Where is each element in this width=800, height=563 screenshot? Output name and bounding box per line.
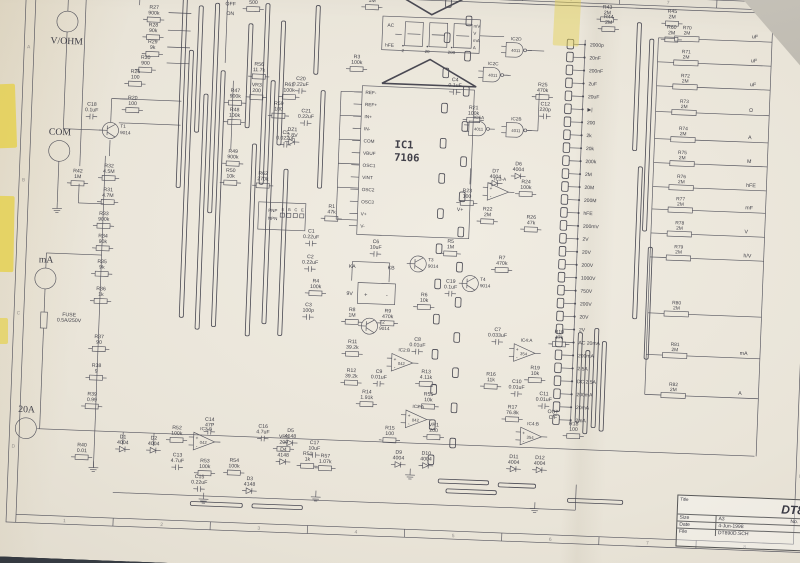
- svg-text:-: -: [490, 195, 492, 200]
- component-label: R141.91k: [356, 389, 378, 407]
- title-block-file-label: File: [677, 529, 716, 536]
- svg-text:2M: 2M: [605, 20, 612, 26]
- svg-text:354: 354: [527, 435, 535, 440]
- component-label: C20.22uF: [302, 254, 319, 272]
- svg-text:2V: 2V: [579, 327, 586, 333]
- svg-text:IC2C: IC2C: [488, 61, 500, 66]
- battery-9v: +-9V: [346, 282, 395, 305]
- component-label: R25470k: [532, 82, 554, 100]
- component-label: D114004: [506, 454, 521, 472]
- component-label: R147k: [321, 203, 343, 221]
- svg-text:C: C: [294, 207, 297, 212]
- svg-text:+: +: [364, 292, 368, 298]
- photo-background: 1122334455667788AABBCCDD2000p20nF200nF2u…: [0, 0, 800, 563]
- svg-text:2M: 2M: [676, 225, 683, 231]
- svg-text:+: +: [522, 432, 525, 437]
- svg-text:20V: 20V: [582, 250, 592, 256]
- component-label: C610uF: [369, 239, 381, 257]
- component-label: R1139.2k: [341, 339, 363, 357]
- fuse: [40, 312, 47, 328]
- svg-text:200nF: 200nF: [589, 68, 603, 74]
- svg-text:100k: 100k: [468, 111, 480, 117]
- component-label: C110.01uF: [535, 391, 552, 409]
- component-label: R15100: [379, 425, 401, 443]
- sheet-border: 1122334455667788AABBCCDD: [6, 0, 800, 553]
- svg-text:IN+: IN+: [364, 114, 372, 119]
- svg-text:uF: uF: [751, 58, 757, 64]
- svg-text:20k: 20k: [586, 146, 595, 152]
- component-label: C12220p: [539, 101, 551, 119]
- svg-text:100k: 100k: [520, 185, 532, 191]
- component-label: C1447P: [204, 417, 216, 435]
- svg-text:100: 100: [131, 74, 140, 80]
- svg-text:900k: 900k: [148, 10, 160, 16]
- component-label: R1239.2k: [340, 368, 362, 386]
- svg-text:6: 6: [549, 537, 552, 543]
- svg-text:100: 100: [569, 427, 578, 433]
- svg-text:IC2D: IC2D: [511, 36, 523, 41]
- svg-text:2M: 2M: [681, 104, 688, 110]
- svg-text:+: +: [393, 358, 396, 363]
- svg-text:R71: R71: [682, 49, 691, 55]
- svg-text:4004: 4004: [534, 461, 546, 467]
- svg-text:0.01uF: 0.01uF: [409, 342, 425, 349]
- svg-text:2.5A: 2.5A: [577, 366, 588, 372]
- component-label: R361k: [90, 286, 112, 304]
- svg-text:042: 042: [398, 361, 406, 366]
- title-block: Title DT890D Size A3 No. Date 4-Jun-1998…: [675, 495, 800, 553]
- svg-text:4004: 4004: [508, 460, 520, 466]
- svg-text:mA: mA: [39, 254, 54, 265]
- svg-text:200mA: 200mA: [578, 353, 595, 360]
- component-label: VR3200: [246, 82, 268, 100]
- svg-text:T1: T1: [120, 124, 126, 129]
- svg-text:9014: 9014: [480, 283, 491, 288]
- svg-text:7: 7: [667, 0, 670, 6]
- svg-text:M: M: [747, 159, 752, 165]
- svg-text:+: +: [489, 187, 492, 192]
- svg-text:39.2k: 39.2k: [346, 345, 359, 351]
- svg-text:2M: 2M: [679, 155, 686, 161]
- component-label: R27900k: [143, 4, 165, 22]
- component-label: R48100k: [224, 107, 246, 125]
- svg-text:+: +: [408, 414, 411, 419]
- component-label: R222M: [477, 206, 499, 224]
- svg-text:10k: 10k: [531, 371, 540, 377]
- svg-text:100: 100: [463, 194, 472, 200]
- svg-text:IN-: IN-: [364, 126, 371, 131]
- component-label: KA: [349, 264, 357, 270]
- svg-text:200: 200: [429, 428, 438, 434]
- svg-text:VBUF: VBUF: [363, 151, 376, 156]
- svg-text:REF+: REF+: [365, 102, 378, 107]
- component-label: R511k: [297, 451, 319, 469]
- component-label: D44148: [276, 447, 291, 465]
- component-label: C180.1uF: [85, 102, 99, 120]
- svg-text:0.22uF: 0.22uF: [303, 234, 319, 241]
- svg-text:2M: 2M: [671, 347, 678, 353]
- svg-text:-: -: [394, 366, 396, 371]
- svg-text:470k: 470k: [382, 314, 394, 320]
- svg-text:0.1uF: 0.1uF: [85, 107, 98, 113]
- svg-text:2M: 2M: [677, 202, 684, 208]
- svg-text:39.2k: 39.2k: [345, 373, 358, 379]
- svg-text:A: A: [738, 391, 742, 397]
- svg-text:4011: 4011: [488, 73, 498, 78]
- component-label: FUSE0.5A/250V: [57, 312, 82, 324]
- component-label: R81M: [341, 307, 363, 325]
- svg-text:1k: 1k: [305, 457, 311, 463]
- svg-text:2M: 2M: [680, 131, 687, 137]
- svg-text:COM: COM: [363, 138, 374, 143]
- svg-text:V-: V-: [360, 224, 365, 229]
- svg-text:4011: 4011: [474, 126, 484, 131]
- component-label: D34148: [242, 476, 257, 494]
- svg-text:2M: 2M: [673, 305, 680, 311]
- terminal-20a: 20A: [15, 404, 37, 439]
- svg-text:IC4:B: IC4:B: [527, 421, 539, 426]
- component-label: C200.22uF: [292, 76, 309, 94]
- component-label: R389: [85, 363, 107, 381]
- svg-text:R75: R75: [678, 150, 687, 156]
- component-label: R602M: [661, 24, 683, 42]
- svg-text:REF-: REF-: [365, 90, 377, 95]
- range-ladder: 2000p20nF200nF2uF20uF▶|2002k20k200k2M20M…: [553, 39, 613, 426]
- svg-text:IC2B: IC2B: [511, 116, 522, 121]
- svg-text:4004: 4004: [117, 440, 129, 446]
- svg-text:10k: 10k: [420, 298, 429, 304]
- component-label: R324.5M: [98, 163, 120, 181]
- svg-text:mA: mA: [473, 38, 480, 43]
- svg-text:2: 2: [160, 522, 163, 528]
- svg-text:IC4:A: IC4:A: [521, 338, 534, 343]
- svg-text:7: 7: [646, 541, 649, 547]
- schematic-paper: 1122334455667788AABBCCDD2000p20nF200nF2u…: [0, 0, 800, 563]
- svg-text:2M: 2M: [668, 30, 675, 36]
- component-label: R59100: [268, 101, 290, 119]
- svg-text:h/V: h/V: [743, 253, 752, 259]
- component-label: R3100k: [346, 54, 368, 72]
- component-label: C40.1uF: [448, 77, 462, 95]
- svg-text:9014: 9014: [379, 326, 390, 331]
- svg-text:B: B: [22, 177, 25, 183]
- svg-text:100k: 100k: [171, 431, 183, 437]
- svg-text:90k: 90k: [149, 28, 158, 34]
- component-label: R51M: [440, 238, 462, 256]
- svg-text:2M: 2M: [585, 172, 592, 178]
- svg-text:9014: 9014: [120, 130, 131, 135]
- svg-text:1M: 1M: [74, 174, 81, 180]
- svg-text:T3: T3: [428, 257, 434, 262]
- svg-text:VINT: VINT: [362, 175, 373, 180]
- svg-text:4148: 4148: [277, 452, 289, 458]
- component-label: PTC500: [243, 0, 265, 12]
- component-label: R452M: [661, 8, 683, 26]
- svg-text:R74: R74: [679, 126, 688, 132]
- svg-text:750V: 750V: [580, 289, 593, 295]
- svg-text:C: C: [17, 310, 21, 316]
- svg-text:+: +: [195, 437, 198, 442]
- svg-text:200V: 200V: [581, 263, 594, 269]
- component-label: R1910k: [524, 365, 546, 383]
- svg-text:200: 200: [587, 120, 596, 126]
- svg-text:47P: 47P: [205, 422, 215, 428]
- component-label: R610k: [413, 292, 435, 310]
- component-label: OUTC/F: [547, 409, 559, 421]
- svg-text:1.91k: 1.91k: [360, 395, 373, 401]
- component-label: R4100k: [305, 278, 327, 296]
- svg-text:042: 042: [200, 440, 208, 445]
- svg-text:1M: 1M: [447, 244, 454, 250]
- component-label: C10.22uF: [303, 228, 320, 246]
- svg-text:100k: 100k: [351, 60, 363, 66]
- svg-text:2M: 2M: [682, 78, 689, 84]
- svg-text:V+: V+: [457, 207, 464, 213]
- svg-text:220p: 220p: [539, 107, 551, 113]
- output-resistors: R702MuFR712MuFR722MuFR732MΩR742MAR752MMR…: [645, 24, 773, 401]
- svg-text:DC 2.5A: DC 2.5A: [577, 379, 597, 386]
- svg-text:100k: 100k: [283, 88, 295, 94]
- svg-text:9k: 9k: [150, 45, 156, 51]
- svg-text:-: -: [516, 356, 518, 361]
- svg-text:4148: 4148: [285, 433, 297, 439]
- svg-text:R82: R82: [669, 382, 678, 388]
- component-label: D104004: [418, 451, 433, 469]
- component-label: R400.01: [71, 442, 93, 460]
- component-label: R7470k: [491, 255, 513, 273]
- svg-text:D: D: [11, 444, 15, 450]
- svg-text:mF: mF: [745, 205, 753, 211]
- svg-text:1k: 1k: [98, 292, 104, 298]
- svg-text:2V: 2V: [582, 237, 589, 243]
- svg-text:▶|: ▶|: [587, 107, 592, 113]
- svg-text:C/F: C/F: [549, 415, 558, 421]
- component-label: R47900k: [224, 88, 246, 106]
- svg-text:0.1uF: 0.1uF: [444, 284, 457, 290]
- svg-text:T2: T2: [379, 319, 385, 324]
- svg-text:200k: 200k: [585, 159, 597, 165]
- svg-text:hFE: hFE: [746, 183, 756, 189]
- svg-text:IC2:B: IC2:B: [398, 347, 410, 352]
- svg-text:900k: 900k: [230, 93, 242, 99]
- svg-text:2.8V: 2.8V: [287, 132, 298, 138]
- svg-text:R70: R70: [683, 25, 692, 31]
- component-label: C210.22uF: [298, 108, 315, 126]
- svg-text:90: 90: [96, 340, 102, 346]
- svg-text:90k: 90k: [99, 239, 108, 245]
- svg-text:200V: 200V: [580, 301, 593, 307]
- svg-text:2M: 2M: [670, 387, 677, 393]
- svg-text:V: V: [473, 31, 476, 36]
- svg-text:200: 200: [252, 88, 261, 94]
- svg-text:100k: 100k: [228, 463, 240, 469]
- component-label: C3100p: [302, 302, 314, 320]
- svg-text:NPN: NPN: [268, 216, 278, 221]
- svg-text:0.1uF: 0.1uF: [448, 83, 461, 89]
- svg-text:100: 100: [274, 106, 283, 112]
- component-label: R421M: [67, 168, 89, 186]
- svg-text:1.07k: 1.07k: [319, 459, 332, 465]
- svg-text:1000V: 1000V: [581, 276, 596, 283]
- svg-text:R80: R80: [672, 300, 681, 306]
- component-label: R20100: [122, 95, 144, 113]
- svg-text:200M: 200M: [584, 198, 597, 204]
- svg-text:1: 1: [63, 518, 66, 524]
- svg-text:2uF: 2uF: [588, 81, 597, 87]
- svg-text:OSC1: OSC1: [363, 163, 376, 168]
- svg-text:IC1: IC1: [394, 139, 414, 152]
- svg-text:1M: 1M: [368, 0, 375, 4]
- svg-text:20A: 20A: [18, 404, 35, 416]
- terminal-ma: mA: [34, 254, 56, 289]
- svg-text:10uF: 10uF: [370, 245, 382, 251]
- component-label: R2890k: [142, 22, 164, 40]
- svg-text:E: E: [281, 207, 284, 212]
- svg-text:0.01uF: 0.01uF: [536, 397, 552, 404]
- component-label: V+: [457, 207, 464, 213]
- svg-text:0.22uF: 0.22uF: [302, 260, 318, 267]
- connector-arrows: [382, 0, 480, 87]
- svg-text:10k: 10k: [226, 173, 235, 179]
- component-label: D14004: [115, 434, 130, 452]
- component-label: R54100k: [223, 458, 245, 476]
- component-label: C70.033uF: [488, 327, 508, 345]
- yellow-tape: [0, 196, 15, 272]
- svg-text:R73: R73: [680, 99, 689, 105]
- component-label: D124004: [532, 455, 547, 473]
- component-label: D24004: [146, 435, 161, 453]
- svg-text:11k: 11k: [487, 377, 496, 383]
- component-label: C100.01uF: [508, 379, 525, 397]
- svg-text:2M: 2M: [683, 54, 690, 60]
- svg-text:0.01: 0.01: [77, 448, 87, 454]
- svg-text:mV: mV: [474, 24, 481, 29]
- svg-text:4.11k: 4.11k: [420, 375, 433, 381]
- component-label: R26100: [124, 69, 146, 87]
- svg-text:PNP: PNP: [268, 208, 277, 213]
- svg-text:270k: 270k: [257, 176, 269, 182]
- svg-text:E: E: [301, 207, 304, 212]
- svg-text:0.99: 0.99: [87, 397, 97, 403]
- svg-text:4004: 4004: [420, 456, 432, 462]
- title-block-title-label: Title: [680, 497, 689, 502]
- component-label: R49900k: [222, 148, 244, 166]
- svg-text:4011: 4011: [511, 48, 521, 53]
- svg-text:2M: 2M: [668, 14, 675, 20]
- svg-text:9014: 9014: [428, 264, 439, 269]
- svg-text:9V: 9V: [346, 291, 353, 297]
- svg-text:AC 20mA: AC 20mA: [578, 340, 600, 347]
- yellow-tape: [553, 0, 582, 47]
- svg-text:4148: 4148: [244, 481, 256, 487]
- yellow-tape: [0, 84, 17, 149]
- svg-text:47k: 47k: [327, 209, 336, 215]
- svg-text:V: V: [744, 229, 748, 235]
- svg-text:A: A: [27, 44, 31, 50]
- svg-text:9k: 9k: [99, 265, 105, 271]
- svg-text:mA: mA: [740, 351, 749, 357]
- svg-text:4: 4: [354, 529, 357, 535]
- svg-text:0.01uF: 0.01uF: [371, 374, 387, 381]
- svg-text:20: 20: [425, 49, 431, 54]
- svg-text:A: A: [748, 135, 752, 141]
- svg-text:V+: V+: [361, 211, 367, 216]
- svg-text:KB: KB: [388, 265, 396, 271]
- component-label: D64004: [511, 161, 526, 179]
- component-label: OFF: [225, 1, 236, 7]
- svg-text:ON: ON: [226, 11, 234, 17]
- svg-text:2M: 2M: [675, 249, 682, 255]
- svg-text:900k: 900k: [227, 154, 239, 160]
- svg-text:354: 354: [520, 351, 528, 356]
- svg-text:20mA: 20mA: [576, 405, 590, 411]
- rotary-switch-bars: [164, 0, 662, 523]
- ground-symbols: [41, 202, 551, 516]
- svg-text:COM: COM: [49, 127, 72, 139]
- component-label: R24100k: [515, 179, 537, 197]
- component-label: C190.1uF: [444, 279, 458, 297]
- component-label: R299k: [142, 39, 164, 57]
- svg-text:R76: R76: [677, 174, 686, 180]
- svg-text:47k: 47k: [527, 220, 536, 226]
- svg-text:100p: 100p: [302, 308, 314, 314]
- svg-text:200mV: 200mV: [583, 224, 600, 231]
- svg-text:2M: 2M: [684, 30, 691, 36]
- svg-text:4.7M: 4.7M: [102, 193, 114, 199]
- component-label: R390.99: [81, 391, 103, 409]
- svg-text:4004: 4004: [393, 455, 405, 461]
- svg-text:4004: 4004: [490, 174, 502, 180]
- svg-text:KA: KA: [349, 264, 357, 270]
- input-terminals: V/OHMCOMmA20A: [15, 10, 85, 441]
- component-label: R2647k: [520, 214, 542, 232]
- component-label: VR1200: [423, 422, 445, 440]
- svg-text:AC: AC: [387, 23, 394, 29]
- component-label: C150.22uF: [191, 474, 208, 492]
- svg-text:2k: 2k: [586, 133, 592, 139]
- svg-text:1M: 1M: [348, 313, 355, 319]
- svg-text:-: -: [408, 422, 410, 427]
- svg-text:042: 042: [412, 417, 420, 422]
- component-label: C80.01uF: [409, 337, 426, 355]
- svg-text:0.22uF: 0.22uF: [298, 114, 314, 121]
- svg-text:V/OHM: V/OHM: [50, 35, 83, 47]
- component-label: R33900k: [93, 211, 115, 229]
- svg-text:OSC2: OSC2: [362, 187, 375, 192]
- svg-text:3: 3: [257, 526, 260, 532]
- svg-text:4004: 4004: [148, 441, 160, 447]
- svg-text:R81: R81: [670, 342, 679, 348]
- svg-text:hFE: hFE: [385, 43, 395, 49]
- component-label: R1047k: [548, 329, 570, 347]
- svg-text:0.22uF: 0.22uF: [293, 81, 309, 88]
- component-label: C90.01uF: [370, 369, 387, 387]
- component-label: R3790: [88, 334, 110, 352]
- svg-text:hFE: hFE: [583, 211, 593, 217]
- svg-text:B: B: [288, 207, 291, 212]
- component-label: R1776.8k: [501, 404, 523, 422]
- svg-text:20V: 20V: [579, 314, 589, 320]
- component-label: R5010k: [220, 168, 242, 186]
- svg-text:100: 100: [385, 431, 394, 437]
- svg-text:0.22uF: 0.22uF: [191, 479, 207, 486]
- main-adc-ic: IC17106REF-REF+IN+IN-COMVBUFOSC1VINTOSC2…: [349, 85, 475, 238]
- component-label: ON: [226, 11, 234, 17]
- svg-text:R79: R79: [674, 244, 683, 250]
- wires: [35, 0, 773, 517]
- component-label: R134.11k: [415, 369, 437, 387]
- svg-text:2M: 2M: [484, 212, 491, 218]
